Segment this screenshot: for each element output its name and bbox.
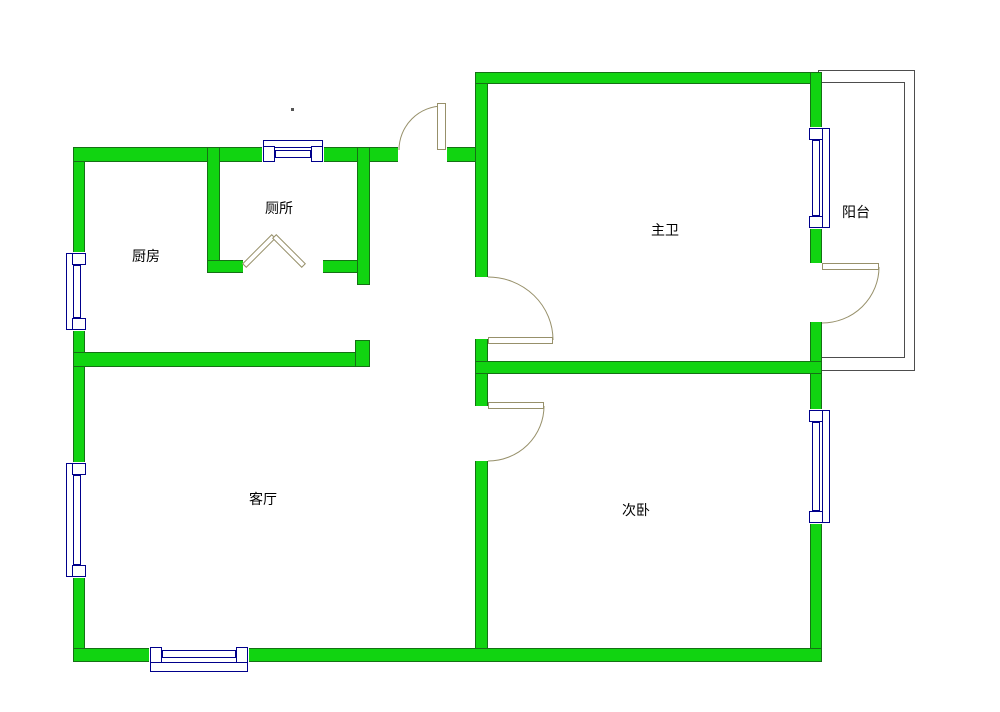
north-window-glass — [275, 150, 311, 158]
master-east-window-frame — [822, 128, 830, 228]
room-label-balcony: 阳台 — [842, 206, 870, 220]
balcony-door-leaf — [822, 263, 879, 270]
floor-plan-canvas: 厨房 厕所 主卫 阳台 客厅 次卧 — [0, 0, 1000, 712]
second-bedroom-door-opening — [474, 406, 489, 461]
toilet-door-opening — [243, 259, 323, 274]
living-south-window-frame — [150, 662, 248, 672]
wall-toilet-east — [357, 147, 370, 285]
living-west-window-glass — [73, 475, 81, 565]
balcony-door-opening — [809, 263, 823, 322]
living-west-window-cap-bottom — [72, 565, 86, 577]
wall-west-exterior — [73, 147, 85, 662]
master-east-window-cap-bottom — [809, 216, 823, 228]
master-room-door-opening — [474, 277, 489, 339]
bedroom-east-window-cap-top — [809, 410, 823, 422]
second-bedroom-door-arc — [488, 406, 544, 461]
living-south-window-cap-left — [150, 647, 162, 663]
north-window-cap-left — [263, 146, 275, 162]
room-label-living-room: 客厅 — [249, 493, 277, 507]
north-window-cap-right — [311, 146, 323, 162]
kitchen-west-window-glass — [73, 265, 81, 318]
living-west-window-cap-top — [72, 463, 86, 475]
wall-hall-south — [73, 352, 370, 367]
room-label-kitchen: 厨房 — [132, 250, 160, 264]
entrance-door-leaf — [437, 103, 446, 150]
bedroom-east-window-glass — [812, 422, 820, 511]
kitchen-west-window-cap-top — [72, 253, 86, 265]
bedroom-east-window-frame — [822, 410, 830, 523]
second-bedroom-door-leaf — [488, 402, 544, 409]
living-south-window-cap-right — [236, 647, 248, 663]
master-room-door-leaf — [488, 337, 553, 344]
master-room-door-arc — [488, 277, 553, 340]
wall-bedroom-divider — [475, 361, 822, 374]
room-label-master-room: 主卫 — [651, 224, 679, 238]
kitchen-west-window-cap-bottom — [72, 318, 86, 330]
master-east-window-cap-top — [809, 128, 823, 140]
living-south-window-glass — [162, 650, 236, 658]
artifact-dot — [291, 108, 294, 111]
bedroom-east-window-cap-bottom — [809, 511, 823, 523]
wall-hall-south-tab — [355, 340, 370, 367]
room-label-second-bedroom: 次卧 — [622, 504, 650, 518]
wall-north-master — [475, 72, 822, 84]
wall-toilet-west — [207, 147, 220, 273]
master-east-window-glass — [812, 140, 820, 216]
room-label-toilet: 厕所 — [265, 202, 293, 216]
